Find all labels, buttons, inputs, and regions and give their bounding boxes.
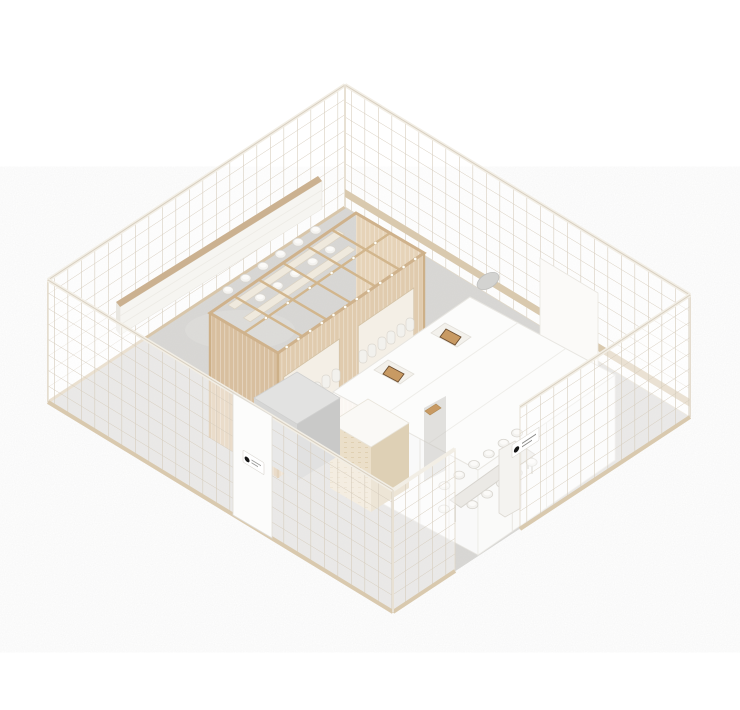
chair <box>325 246 336 254</box>
chair <box>293 238 304 246</box>
chair <box>483 450 494 458</box>
bar-chair <box>387 331 395 344</box>
chair <box>310 226 321 234</box>
isometric-cafe-rendering: ● ● <box>0 0 740 710</box>
chair <box>255 294 266 302</box>
chair <box>275 250 286 258</box>
chair <box>482 490 493 498</box>
bar-chair <box>397 324 405 337</box>
chair <box>240 274 251 282</box>
bar-chair <box>332 369 340 382</box>
chair <box>223 286 234 294</box>
bar-chair <box>359 350 367 363</box>
chair <box>467 501 478 509</box>
rendering-canvas: ● ● <box>0 0 740 710</box>
bar-chair <box>378 337 386 350</box>
chair <box>258 262 269 270</box>
chair <box>307 258 318 266</box>
bar-chair <box>406 318 414 331</box>
bar-chair <box>368 344 376 357</box>
chair <box>469 461 480 469</box>
bar-chair <box>322 375 330 388</box>
